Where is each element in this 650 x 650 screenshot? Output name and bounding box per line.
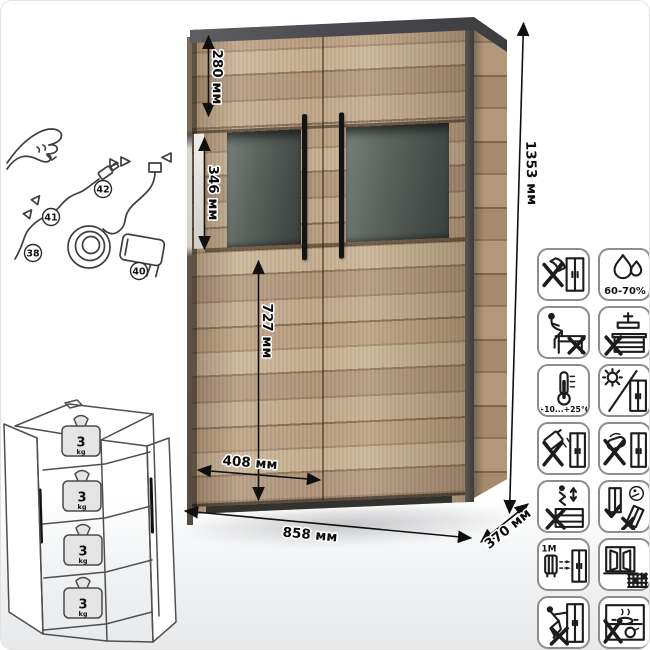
door-handle-left <box>302 114 307 260</box>
door-seam <box>322 24 324 500</box>
svg-text:kg: kg <box>79 557 88 565</box>
care-icon-grid: 60-70% <box>537 248 650 649</box>
svg-text:+10...+25°C: +10...+25°C <box>541 404 587 413</box>
part-label-40: 40 <box>131 263 148 280</box>
svg-text:≥1М: ≥1М <box>541 544 557 554</box>
led-wiring-diagram: 38 41 42 40 <box>3 111 188 296</box>
svg-text:kg: kg <box>78 503 87 511</box>
dim-overall-height: 1353 мм <box>522 141 540 206</box>
no-aggressive-liquids-icon <box>537 422 590 475</box>
no-abrasive-cleaners-icon <box>598 422 650 475</box>
part-label-42: 42 <box>95 181 112 198</box>
svg-text:38: 38 <box>26 249 40 260</box>
no-climbing-icon <box>537 480 590 533</box>
door-handle-right <box>339 112 344 258</box>
cabinet-photo <box>186 11 508 556</box>
part-label-38: 38 <box>25 245 42 262</box>
hand-icon <box>7 129 62 169</box>
led-light-strip <box>194 133 204 248</box>
cable-coil <box>68 226 110 268</box>
carcass-side <box>101 440 153 642</box>
part-label-41: 41 <box>43 209 60 226</box>
no-sharp-tools-icon <box>537 248 590 301</box>
shelf-weight: 3 kg <box>64 525 102 566</box>
cabinet-side-panel <box>474 11 507 511</box>
product-spec-sheet: 38 41 42 40 3 <box>0 0 650 650</box>
humidity-range-icon: 60-70% <box>598 248 650 301</box>
svg-text:kg: kg <box>79 610 88 618</box>
svg-text:42: 42 <box>96 185 109 196</box>
cabinet-front <box>192 18 474 514</box>
glass-door-right <box>346 123 449 242</box>
shelf-load-drawing: 3 kg 3 kg 3 kg 3 kg <box>1 394 179 650</box>
shelf-weight: 3 kg <box>63 471 101 512</box>
no-press-load-icon <box>598 306 650 359</box>
no-direct-sunlight-icon <box>598 364 650 417</box>
shelf-weight: 3 kg <box>64 578 102 619</box>
svg-text:60-70%: 60-70% <box>604 285 646 296</box>
svg-text:40: 40 <box>132 267 146 278</box>
svg-text:kg: kg <box>77 448 86 456</box>
temperature-range-icon: +10...+25°C <box>537 364 590 417</box>
ventilate-room-icon <box>598 538 650 591</box>
transport-upright-icon <box>598 480 650 533</box>
svg-text:41: 41 <box>44 213 57 224</box>
no-hot-objects-icon <box>598 596 650 649</box>
no-sitting-icon <box>537 306 590 359</box>
glass-door-left <box>227 129 301 247</box>
keep-1m-from-heaters-icon: ≥1М <box>537 538 590 591</box>
no-dragging-icon <box>537 596 590 649</box>
